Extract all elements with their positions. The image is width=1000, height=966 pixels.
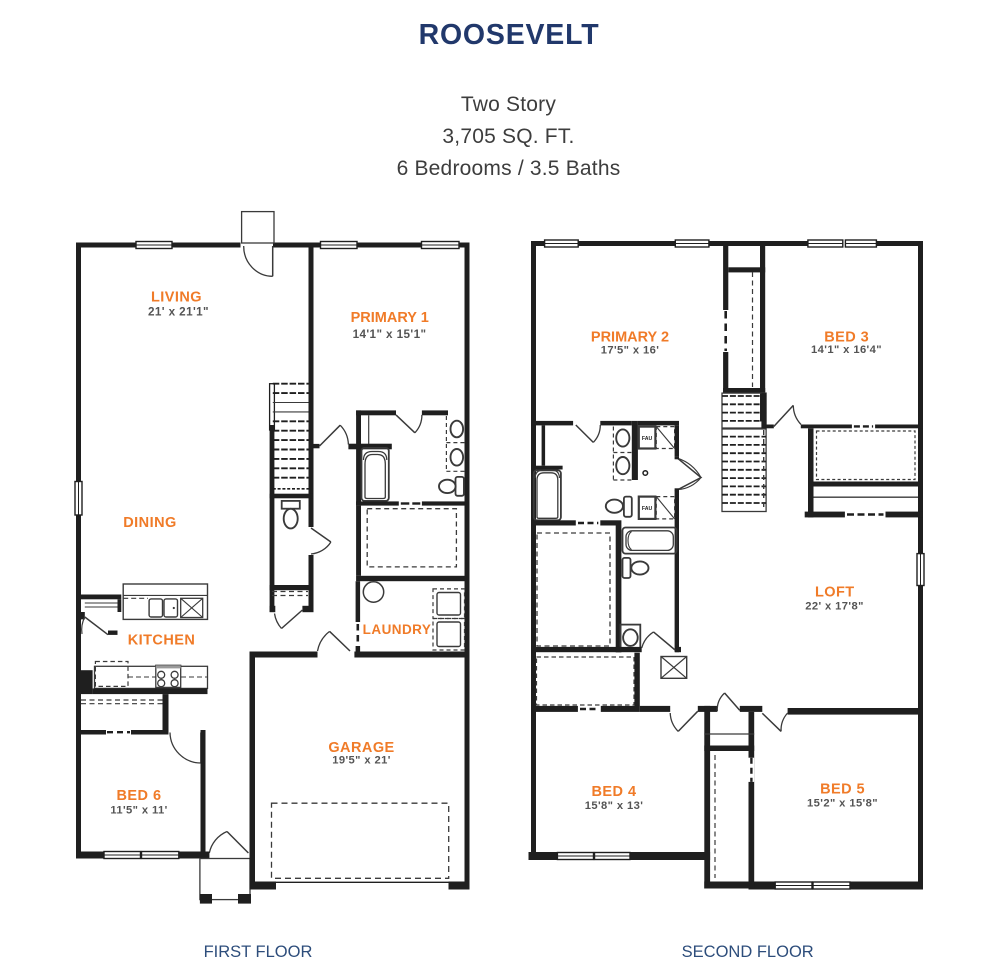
- svg-text:14'1" x 15'1": 14'1" x 15'1": [353, 328, 427, 341]
- svg-text:FIRST FLOOR: FIRST FLOOR: [204, 943, 313, 961]
- svg-text:FAU: FAU: [642, 506, 653, 512]
- svg-text:LAUNDRY: LAUNDRY: [363, 622, 432, 637]
- svg-text:LOFT: LOFT: [815, 585, 855, 601]
- svg-text:22' x 17'8": 22' x 17'8": [805, 601, 864, 613]
- svg-text:BED 4: BED 4: [592, 784, 637, 800]
- svg-text:PRIMARY 2: PRIMARY 2: [591, 329, 669, 345]
- svg-text:BED 5: BED 5: [820, 782, 865, 798]
- svg-text:SECOND FLOOR: SECOND FLOOR: [682, 943, 814, 961]
- svg-text:15'8" x 13': 15'8" x 13': [585, 800, 644, 812]
- svg-text:KITCHEN: KITCHEN: [128, 633, 196, 649]
- svg-text:LIVING: LIVING: [151, 290, 202, 306]
- svg-text:14'1" x 16'4": 14'1" x 16'4": [811, 344, 882, 356]
- svg-text:19'5" x 21': 19'5" x 21': [332, 755, 391, 767]
- svg-text:17'5" x 16': 17'5" x 16': [601, 345, 660, 357]
- svg-text:BED 6: BED 6: [117, 788, 162, 804]
- svg-text:11'5" x 11': 11'5" x 11': [110, 805, 167, 817]
- svg-text:15'2" x 15'8": 15'2" x 15'8": [807, 798, 878, 810]
- svg-text:FAU: FAU: [642, 436, 653, 442]
- svg-text:DINING: DINING: [123, 515, 176, 531]
- svg-text:PRIMARY 1: PRIMARY 1: [351, 310, 429, 326]
- svg-text:BED 3: BED 3: [824, 329, 869, 345]
- svg-text:21' x 21'1": 21' x 21'1": [148, 306, 209, 319]
